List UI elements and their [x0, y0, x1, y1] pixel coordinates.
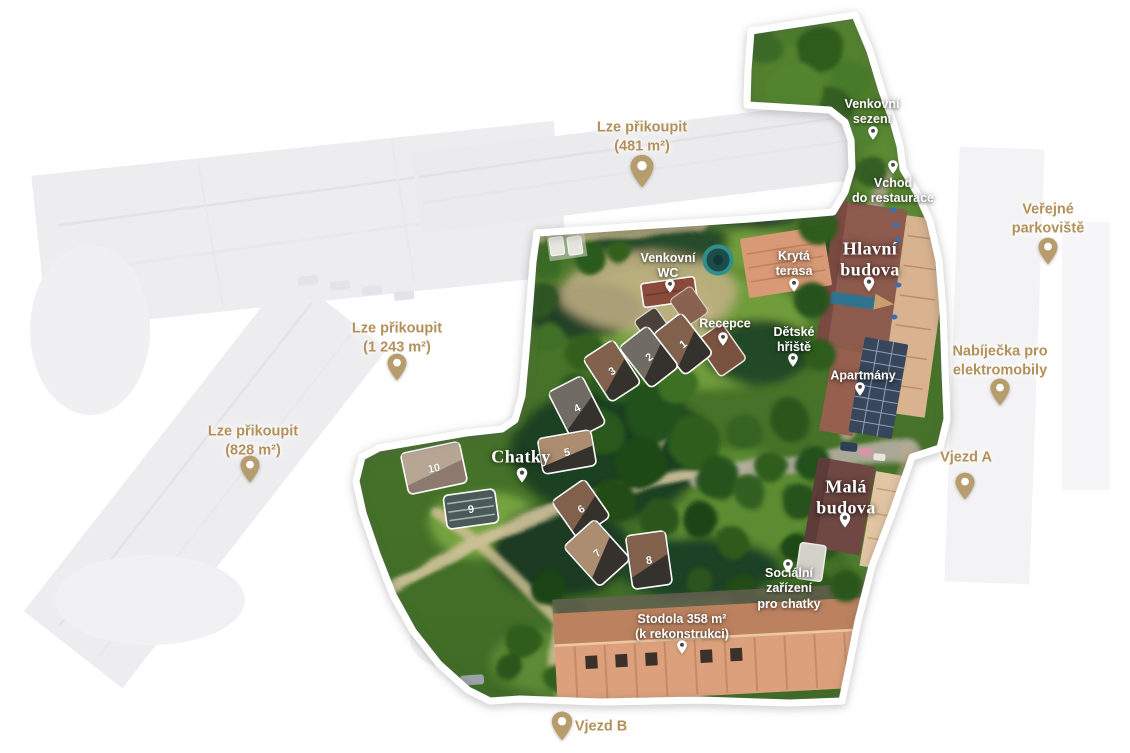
label-line: Apartmány [830, 368, 895, 383]
label-line: terasa [776, 264, 813, 279]
map-pin-icon [550, 711, 574, 742]
label-line: Dětské [774, 325, 815, 340]
label-line: Lze přikoupit [208, 422, 298, 441]
map-pin-icon [718, 332, 729, 347]
map-pin-icon [989, 378, 1011, 407]
pin-lze-prikoupit-828 [239, 455, 261, 484]
label-line: Lze přikoupit [352, 319, 442, 338]
map-pin-icon [863, 276, 875, 292]
map-pin-icon [677, 640, 688, 655]
label-line: Vjezd B [575, 718, 627, 737]
pin-mala-budova [839, 512, 851, 528]
label-venkovni-wc: VenkovníWC [641, 251, 696, 282]
map-pin-icon [789, 278, 800, 293]
label-line: budova [816, 497, 875, 518]
pin-lze-prikoupit-1243 [386, 353, 408, 382]
label-stodola: Stodola 358 m²(k rekonstrukci) [635, 612, 729, 643]
label-line: zařízení [757, 581, 820, 596]
labels-layer: Lze přikoupit(481 m²)Lze přikoupit(1 243… [0, 0, 1130, 753]
map-pin-icon [629, 154, 656, 189]
pin-detske-hriste [788, 353, 799, 368]
label-recepce: Recepce [699, 316, 750, 331]
label-line: elektromobily [952, 361, 1047, 380]
label-line: Nabíječka pro [952, 342, 1047, 361]
label-mala-budova: Malábudova [816, 476, 875, 517]
label-detske-hriste: Dětskéhřiště [774, 325, 815, 356]
label-nabijecka-pro-elektromobily: Nabíječka proelektromobily [952, 342, 1047, 379]
pin-apartmany [855, 382, 866, 397]
pin-hlavni-budova [863, 276, 875, 292]
label-line: Chatky [491, 447, 550, 468]
label-line: (828 m²) [208, 441, 298, 460]
map-pin-icon [788, 353, 799, 368]
label-line: (1 243 m²) [352, 338, 442, 357]
map-pin-icon [954, 472, 976, 501]
pin-vchod-do-restaurace [888, 160, 899, 175]
pin-vjezd-b [550, 711, 574, 742]
label-line: Stodola 358 m² [635, 612, 729, 627]
label-line: Lze přikoupit [597, 118, 687, 137]
pin-vjezd-a [954, 472, 976, 501]
pin-venkovni-sezeni [868, 126, 879, 141]
pin-stodola [677, 640, 688, 655]
map-pin-icon [855, 382, 866, 397]
map-pin-icon [888, 160, 899, 175]
pin-kryta-terasa [789, 278, 800, 293]
label-line: Vchod [852, 176, 934, 191]
label-hlavni-budova: Hlavníbudova [840, 238, 899, 279]
label-lze-prikoupit-828: Lze přikoupit(828 m²) [208, 422, 298, 459]
map-pin-icon [868, 126, 879, 141]
label-line: do restaurace [852, 191, 934, 206]
label-venkovni-sezeni: Venkovnísezení [845, 97, 900, 128]
label-line: Hlavní [840, 238, 899, 259]
pin-venkovni-wc [665, 279, 676, 294]
label-line: parkoviště [1012, 219, 1085, 238]
label-vjezd-b: Vjezd B [575, 718, 627, 737]
label-line: Sociální [757, 566, 820, 581]
label-line: Venkovní [845, 97, 900, 112]
label-chatky: Chatky [491, 447, 550, 468]
label-line: Recepce [699, 316, 750, 331]
label-vchod-do-restaurace: Vchoddo restaurace [852, 176, 934, 207]
label-lze-prikoupit-1243: Lze přikoupit(1 243 m²) [352, 319, 442, 356]
label-socialni-zarizeni-pro-chatky: Sociálnízařízenípro chatky [757, 566, 820, 612]
pin-chatky [516, 467, 528, 483]
label-line: (k rekonstrukci) [635, 627, 729, 642]
label-line: WC [641, 266, 696, 281]
label-line: Venkovní [641, 251, 696, 266]
label-vjezd-a: Vjezd A [940, 449, 992, 468]
label-line: Veřejné [1012, 200, 1085, 219]
label-kryta-terasa: Krytáterasa [776, 249, 813, 280]
pin-recepce [718, 332, 729, 347]
pin-verejne-parkoviste [1037, 237, 1059, 266]
label-line: pro chatky [757, 597, 820, 612]
map-pin-icon [239, 455, 261, 484]
site-map: 12345678910 Lze přikoupit(481 m²)Lze při… [0, 0, 1130, 753]
label-line: budova [840, 259, 899, 280]
label-apartmany: Apartmány [830, 368, 895, 383]
pin-lze-prikoupit-481 [629, 154, 656, 189]
map-pin-icon [516, 467, 528, 483]
label-line: (481 m²) [597, 137, 687, 156]
map-pin-icon [665, 279, 676, 294]
label-line: Vjezd A [940, 449, 992, 468]
pin-nabijecka-pro-elektromobily [989, 378, 1011, 407]
map-pin-icon [839, 512, 851, 528]
map-pin-icon [386, 353, 408, 382]
map-pin-icon [1037, 237, 1059, 266]
pin-socialni-zarizeni-pro-chatky [783, 559, 794, 574]
label-line: Malá [816, 476, 875, 497]
label-line: hřiště [774, 340, 815, 355]
label-lze-prikoupit-481: Lze přikoupit(481 m²) [597, 118, 687, 155]
map-pin-icon [783, 559, 794, 574]
label-verejne-parkoviste: Veřejnéparkoviště [1012, 200, 1085, 237]
label-line: sezení [845, 112, 900, 127]
label-line: Krytá [776, 249, 813, 264]
